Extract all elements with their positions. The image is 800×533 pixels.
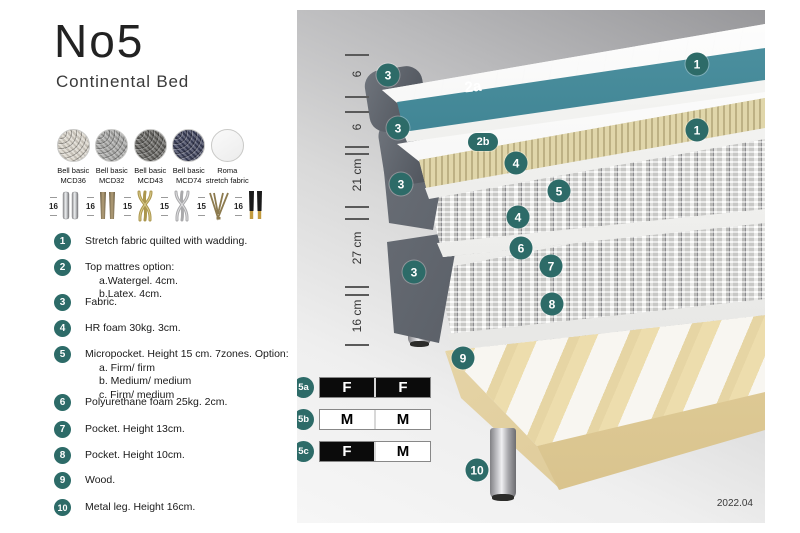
firmness-row-5b: 5b M M	[297, 409, 431, 430]
measure-dash	[235, 197, 242, 198]
feature-text: Top mattres option:	[85, 261, 178, 275]
fabric-swatch-circle[interactable]	[211, 129, 244, 162]
badge-micropocket-5: 5	[548, 180, 571, 203]
dimension-label: 16 cm	[350, 300, 364, 333]
feature-number-badge: 4	[54, 320, 71, 337]
fabric-swatch-label: Bell basic	[173, 166, 205, 175]
feature-number-badge: 9	[54, 472, 71, 489]
measure-dash	[87, 215, 94, 216]
metal-leg-front-foot	[492, 494, 514, 501]
leg-height-value: 16	[234, 202, 243, 211]
badge-stretch-fabric-1: 1	[686, 53, 709, 76]
fabric-swatch-mcd32[interactable]: Bell basic MCD32	[93, 129, 132, 185]
badge-fabric-3: 3	[377, 64, 400, 87]
firmness-badge-5a: 5a	[297, 377, 314, 398]
feature-item-3: 3 Fabric.	[54, 294, 117, 311]
feature-number-badge: 8	[54, 447, 71, 464]
firmness-row-5a: 5a F F	[297, 377, 431, 398]
fabric-swatch-label: MCD74	[176, 176, 201, 185]
hairpin-leg-icon	[207, 189, 231, 223]
measure-dash	[50, 197, 57, 198]
firmness-cell: M	[320, 410, 374, 429]
badge-fabric-3: 3	[390, 173, 413, 196]
leg-height: 16	[233, 193, 244, 220]
dimension-label: 6	[350, 124, 364, 131]
fabric-swatch-label: Bell basic	[134, 166, 166, 175]
fabric-swatch-circle[interactable]	[134, 129, 167, 162]
measure-dash	[124, 197, 131, 198]
bronze-cone-leg-icon	[96, 189, 120, 223]
dimension-label: 21 cm	[350, 159, 364, 192]
fabric-swatch-circle[interactable]	[95, 129, 128, 162]
measure-dash	[87, 197, 94, 198]
firmness-cell: F	[320, 442, 374, 461]
dimension-tick	[345, 218, 369, 220]
fabric-swatch-mcd74[interactable]: Bell basic MCD74	[170, 129, 209, 185]
dimension-label: 6	[350, 71, 364, 78]
leg-height: 16	[48, 193, 59, 220]
dimension-tick	[345, 111, 369, 113]
firmness-table-5a: F F	[319, 377, 431, 398]
measure-dash	[161, 215, 168, 216]
metal-leg-front	[490, 428, 516, 500]
leg-height-value: 15	[197, 202, 206, 211]
firmness-cell: F	[320, 378, 374, 397]
badge-polyurethane-6: 6	[510, 237, 533, 260]
feature-number-badge: 1	[54, 233, 71, 250]
metal-leg-rear-foot	[410, 341, 429, 347]
fabric-swatch-label: Bell basic	[57, 166, 89, 175]
leg-height-value: 15	[160, 202, 169, 211]
firmness-cell: F	[374, 378, 430, 397]
leg-option-bronze[interactable]: 16	[85, 189, 122, 223]
leg-options-row: 16 16	[48, 189, 270, 223]
fabric-options-row: Bell basic MCD36 Bell basic MCD32 Bell b…	[54, 129, 247, 185]
feature-number-badge: 6	[54, 394, 71, 411]
fabric-swatch-circle[interactable]	[57, 129, 90, 162]
page-title: No5	[54, 18, 144, 64]
measure-dash	[124, 215, 131, 216]
firmness-cell: M	[374, 410, 430, 429]
gold-twist-leg-icon	[133, 189, 157, 223]
leg-height: 16	[85, 193, 96, 220]
feature-item-7: 7 Pocket. Height 13cm.	[54, 421, 185, 438]
dimension-tick	[345, 206, 369, 208]
fabric-swatch-label: MCD32	[99, 176, 124, 185]
dimension-tick	[345, 286, 369, 288]
badge-latex-2b: 2b	[468, 133, 498, 151]
feature-item-9: 9 Wood.	[54, 472, 115, 489]
measure-dash	[161, 197, 168, 198]
feature-number-badge: 2	[54, 259, 71, 276]
measure-dash	[235, 215, 242, 216]
feature-item-1: 1 Stretch fabric quilted with wadding.	[54, 233, 247, 250]
fabric-swatch-label: MCD36	[61, 176, 86, 185]
feature-text: Pocket. Height 13cm.	[85, 423, 185, 437]
bed-diagram-panel: 6 6 21 cm 27 cm 16 cm 3 2a 1 3 2b 1 4 5 …	[297, 10, 765, 523]
dimension-tick	[345, 344, 369, 346]
leg-option-black-gold[interactable]: 16	[233, 189, 270, 223]
measure-dash	[50, 215, 57, 216]
leg-height-value: 16	[86, 202, 95, 211]
feature-number-badge: 3	[54, 294, 71, 311]
badge-fabric-3: 3	[387, 117, 410, 140]
dimension-label: 27 cm	[350, 232, 364, 265]
badge-hr-foam-4: 4	[507, 206, 530, 229]
feature-text: HR foam 30kg. 3cm.	[85, 322, 181, 336]
firmness-badge-5b: 5b	[297, 409, 314, 430]
feature-text: Stretch fabric quilted with wadding.	[85, 235, 247, 249]
fabric-swatch-label: stretch fabric	[206, 176, 249, 185]
silver-twist-leg-icon	[170, 189, 194, 223]
feature-text: Polyurethane foam 25kg. 2cm.	[85, 396, 227, 410]
dimension-tick	[345, 96, 369, 98]
firmness-table-5c: F M	[319, 441, 431, 462]
feature-subtext: b. Medium/ medium	[99, 375, 289, 389]
fabric-swatch-label: MCD43	[138, 176, 163, 185]
page-subtitle: Continental Bed	[56, 72, 189, 92]
feature-item-6: 6 Polyurethane foam 25kg. 2cm.	[54, 394, 227, 411]
leg-height-value: 16	[49, 202, 58, 211]
badge-pocket-8: 8	[541, 293, 564, 316]
leg-option-hairpin[interactable]: 15	[196, 189, 233, 223]
leg-option-silver-twist[interactable]: 15	[159, 189, 196, 223]
badge-pocket-7: 7	[540, 255, 563, 278]
fabric-swatch-mcd36[interactable]: Bell basic MCD36	[54, 129, 93, 185]
badge-watergel-2a: 2a	[464, 78, 482, 97]
badge-stretch-fabric-1: 1	[686, 119, 709, 142]
measure-dash	[198, 197, 205, 198]
leg-height: 15	[196, 193, 207, 220]
leg-option-chrome[interactable]: 16	[48, 189, 85, 223]
feature-text: Metal leg. Height 16cm.	[85, 501, 195, 515]
feature-text: Wood.	[85, 474, 115, 488]
feature-subtext: a.Watergel. 4cm.	[99, 275, 178, 289]
dimension-tick	[345, 294, 369, 296]
badge-metal-leg-10: 10	[466, 459, 489, 482]
feature-number-badge: 10	[54, 499, 71, 516]
feature-number-badge: 7	[54, 421, 71, 438]
feature-item-4: 4 HR foam 30kg. 3cm.	[54, 320, 181, 337]
fabric-swatch-roma[interactable]: Roma stretch fabric	[208, 129, 247, 185]
firmness-table-5b: M M	[319, 409, 431, 430]
fabric-swatch-mcd43[interactable]: Bell basic MCD43	[131, 129, 170, 185]
leg-height: 15	[122, 193, 133, 220]
measure-dash	[198, 215, 205, 216]
dimension-tick	[345, 146, 369, 148]
feature-item-8: 8 Pocket. Height 10cm.	[54, 447, 185, 464]
feature-item-10: 10 Metal leg. Height 16cm.	[54, 499, 195, 516]
feature-text: Fabric.	[85, 296, 117, 310]
feature-text: Pocket. Height 10cm.	[85, 449, 185, 463]
feature-text: Micropocket. Height 15 cm. 7zones. Optio…	[85, 348, 289, 362]
firmness-cell: M	[374, 442, 430, 461]
dimension-tick	[345, 54, 369, 56]
firmness-badge-5c: 5c	[297, 441, 314, 462]
fabric-swatch-circle[interactable]	[172, 129, 205, 162]
badge-hr-foam-4: 4	[505, 152, 528, 175]
black-gold-leg-icon	[244, 189, 268, 223]
feature-subtext: a. Firm/ firm	[99, 362, 289, 376]
version-label: 2022.04	[717, 498, 753, 509]
chrome-cylinder-leg-icon	[59, 189, 83, 223]
leg-height: 15	[159, 193, 170, 220]
dimension-tick	[345, 153, 369, 155]
badge-fabric-3: 3	[403, 261, 426, 284]
feature-number-badge: 5	[54, 346, 71, 363]
firmness-row-5c: 5c F M	[297, 441, 431, 462]
leg-height-value: 15	[123, 202, 132, 211]
fabric-swatch-label: Bell basic	[96, 166, 128, 175]
badge-wood-9: 9	[452, 347, 475, 370]
product-sheet: No5 Continental Bed Bell basic MCD36 Bel…	[0, 0, 800, 533]
fabric-swatch-label: Roma	[217, 166, 237, 175]
leg-option-gold-twist[interactable]: 15	[122, 189, 159, 223]
